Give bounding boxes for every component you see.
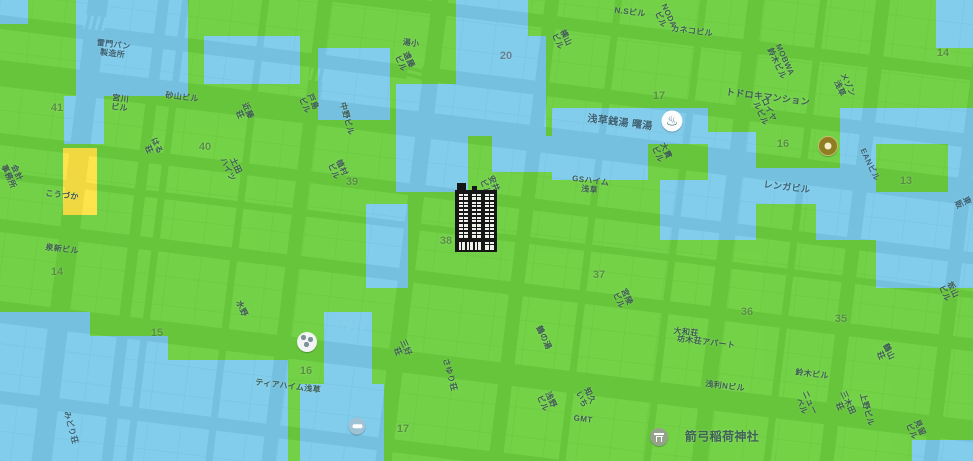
temple-icon-center xyxy=(825,143,832,150)
building-window xyxy=(459,217,469,223)
temple-icon[interactable] xyxy=(818,136,838,156)
block-number: 41 xyxy=(51,102,63,114)
map-label: GSハイム 浅草 xyxy=(570,175,609,197)
block-number: 15 xyxy=(151,327,163,339)
map-canvas[interactable]: 雷門パン 製造所宮川 ビル41砂山ビル近藤 荘戸島 ビル会計 事務所こうづか40… xyxy=(0,0,973,461)
building-window xyxy=(472,194,482,200)
building-window xyxy=(472,224,482,230)
map-label: 戸島 ビル xyxy=(296,93,319,116)
building-window xyxy=(472,217,482,223)
building-window xyxy=(459,232,469,238)
map-label: 大貫 ビル xyxy=(649,142,672,165)
map-label: 見留 ビル xyxy=(903,419,926,442)
block-number: 17 xyxy=(653,90,665,102)
bus-stop-icon[interactable] xyxy=(349,418,366,435)
block-number: 16 xyxy=(300,365,312,377)
block-number: 17 xyxy=(397,423,409,435)
map-label: 泉新ビル xyxy=(45,244,79,257)
map-label: 東販 xyxy=(952,194,973,212)
block-number: 36 xyxy=(741,306,753,318)
map-label: 雷門パン 製造所 xyxy=(95,39,131,61)
building-door xyxy=(459,242,465,250)
map-label: N.Sビル xyxy=(614,7,646,20)
map-label: 上野ビル xyxy=(857,393,874,428)
building-window xyxy=(485,224,495,230)
map-label: 砂山ビル xyxy=(165,92,199,105)
building-window xyxy=(459,202,469,208)
map-label: はる 荘 xyxy=(140,137,163,160)
shrine-torii-icon[interactable] xyxy=(650,428,668,446)
map-label: ティアハイム浅草 xyxy=(255,379,322,396)
building-window xyxy=(459,224,469,230)
map-label: レンガビル xyxy=(763,179,811,195)
map-label: 三好 荘 xyxy=(389,339,412,362)
building-door xyxy=(467,242,473,250)
building-window xyxy=(485,217,495,223)
map-label: 湯小 xyxy=(402,39,420,50)
block-number: 16 xyxy=(777,138,789,150)
map-label: 坊木荘アパート xyxy=(676,335,735,351)
block-number: 14 xyxy=(51,266,63,278)
block-number: 37 xyxy=(593,269,605,281)
park-icon-dot xyxy=(304,342,309,347)
building-window xyxy=(472,202,482,208)
map-label: 箭弓稲荷神社 xyxy=(685,430,759,443)
building-window xyxy=(485,209,495,215)
building-window xyxy=(485,202,495,208)
map-label: 会計 事務所 xyxy=(0,160,25,190)
map-label: さゆり荘 xyxy=(440,358,457,393)
bus-icon-bar xyxy=(352,424,362,429)
park-icon-dot xyxy=(308,337,313,342)
labels-layer: 雷門パン 製造所宮川 ビル41砂山ビル近藤 荘戸島 ビル会計 事務所こうづか40… xyxy=(0,0,973,461)
torii-bar xyxy=(661,436,663,442)
map-label: 鶴の湯 xyxy=(534,325,553,352)
block-number: 35 xyxy=(835,313,847,325)
map-label: 知久 いち xyxy=(573,387,596,410)
map-label: MOBWA 鈴木ビル xyxy=(765,43,795,81)
map-label: EANビル xyxy=(858,147,881,182)
park-icon[interactable] xyxy=(297,332,317,352)
map-label: 鶴山 荘 xyxy=(872,343,895,366)
block-number: 20 xyxy=(500,50,512,62)
map-label: 鈴木ビル xyxy=(795,369,829,382)
torii-bar xyxy=(656,436,658,442)
building-marker[interactable] xyxy=(455,182,499,252)
hot-spring-icon[interactable]: ♨ xyxy=(662,111,683,132)
block-number: 40 xyxy=(199,141,211,153)
map-label: 三木田 荘 xyxy=(830,390,857,420)
building-window xyxy=(485,232,495,238)
map-label: 浅草銭湯 曙湯 xyxy=(587,113,653,132)
map-label: 土田 ハイツ xyxy=(218,153,245,183)
map-label: GMT xyxy=(573,414,593,425)
map-label: 遠藤 ビル xyxy=(392,51,415,74)
block-number: 13 xyxy=(900,175,912,187)
map-label: 横山 ビル xyxy=(549,29,572,52)
building-window xyxy=(472,232,482,238)
map-label: 宮陵 ビル xyxy=(610,288,633,311)
building-ground-window xyxy=(485,242,495,250)
map-label: 浅野 ビル xyxy=(534,391,557,414)
building-window xyxy=(472,209,482,215)
map-label: みどり荘 xyxy=(61,411,78,446)
building-door xyxy=(475,242,481,250)
map-label: 水野 xyxy=(233,299,248,318)
map-label: 中野ビル xyxy=(337,102,354,137)
torii-bar xyxy=(654,433,664,435)
block-number: 38 xyxy=(440,235,452,247)
map-label: メゾン 浅草 xyxy=(830,72,857,102)
block-number: 14 xyxy=(937,47,949,59)
park-icon-dot xyxy=(301,335,306,340)
torii-glyph xyxy=(654,433,664,442)
building-window xyxy=(459,194,469,200)
building-window xyxy=(485,194,495,200)
map-label: 坂山 ビル xyxy=(936,281,959,304)
block-number: 39 xyxy=(346,176,358,188)
map-label: こうづか xyxy=(45,190,79,203)
map-label: カネコビル xyxy=(671,25,714,39)
map-label: 宮川 ビル xyxy=(111,94,130,114)
map-label: ニュー ベル xyxy=(792,390,819,420)
map-label: 近藤 荘 xyxy=(231,102,254,125)
map-label: 浅利Nビル xyxy=(705,380,746,394)
building-window xyxy=(459,209,469,215)
